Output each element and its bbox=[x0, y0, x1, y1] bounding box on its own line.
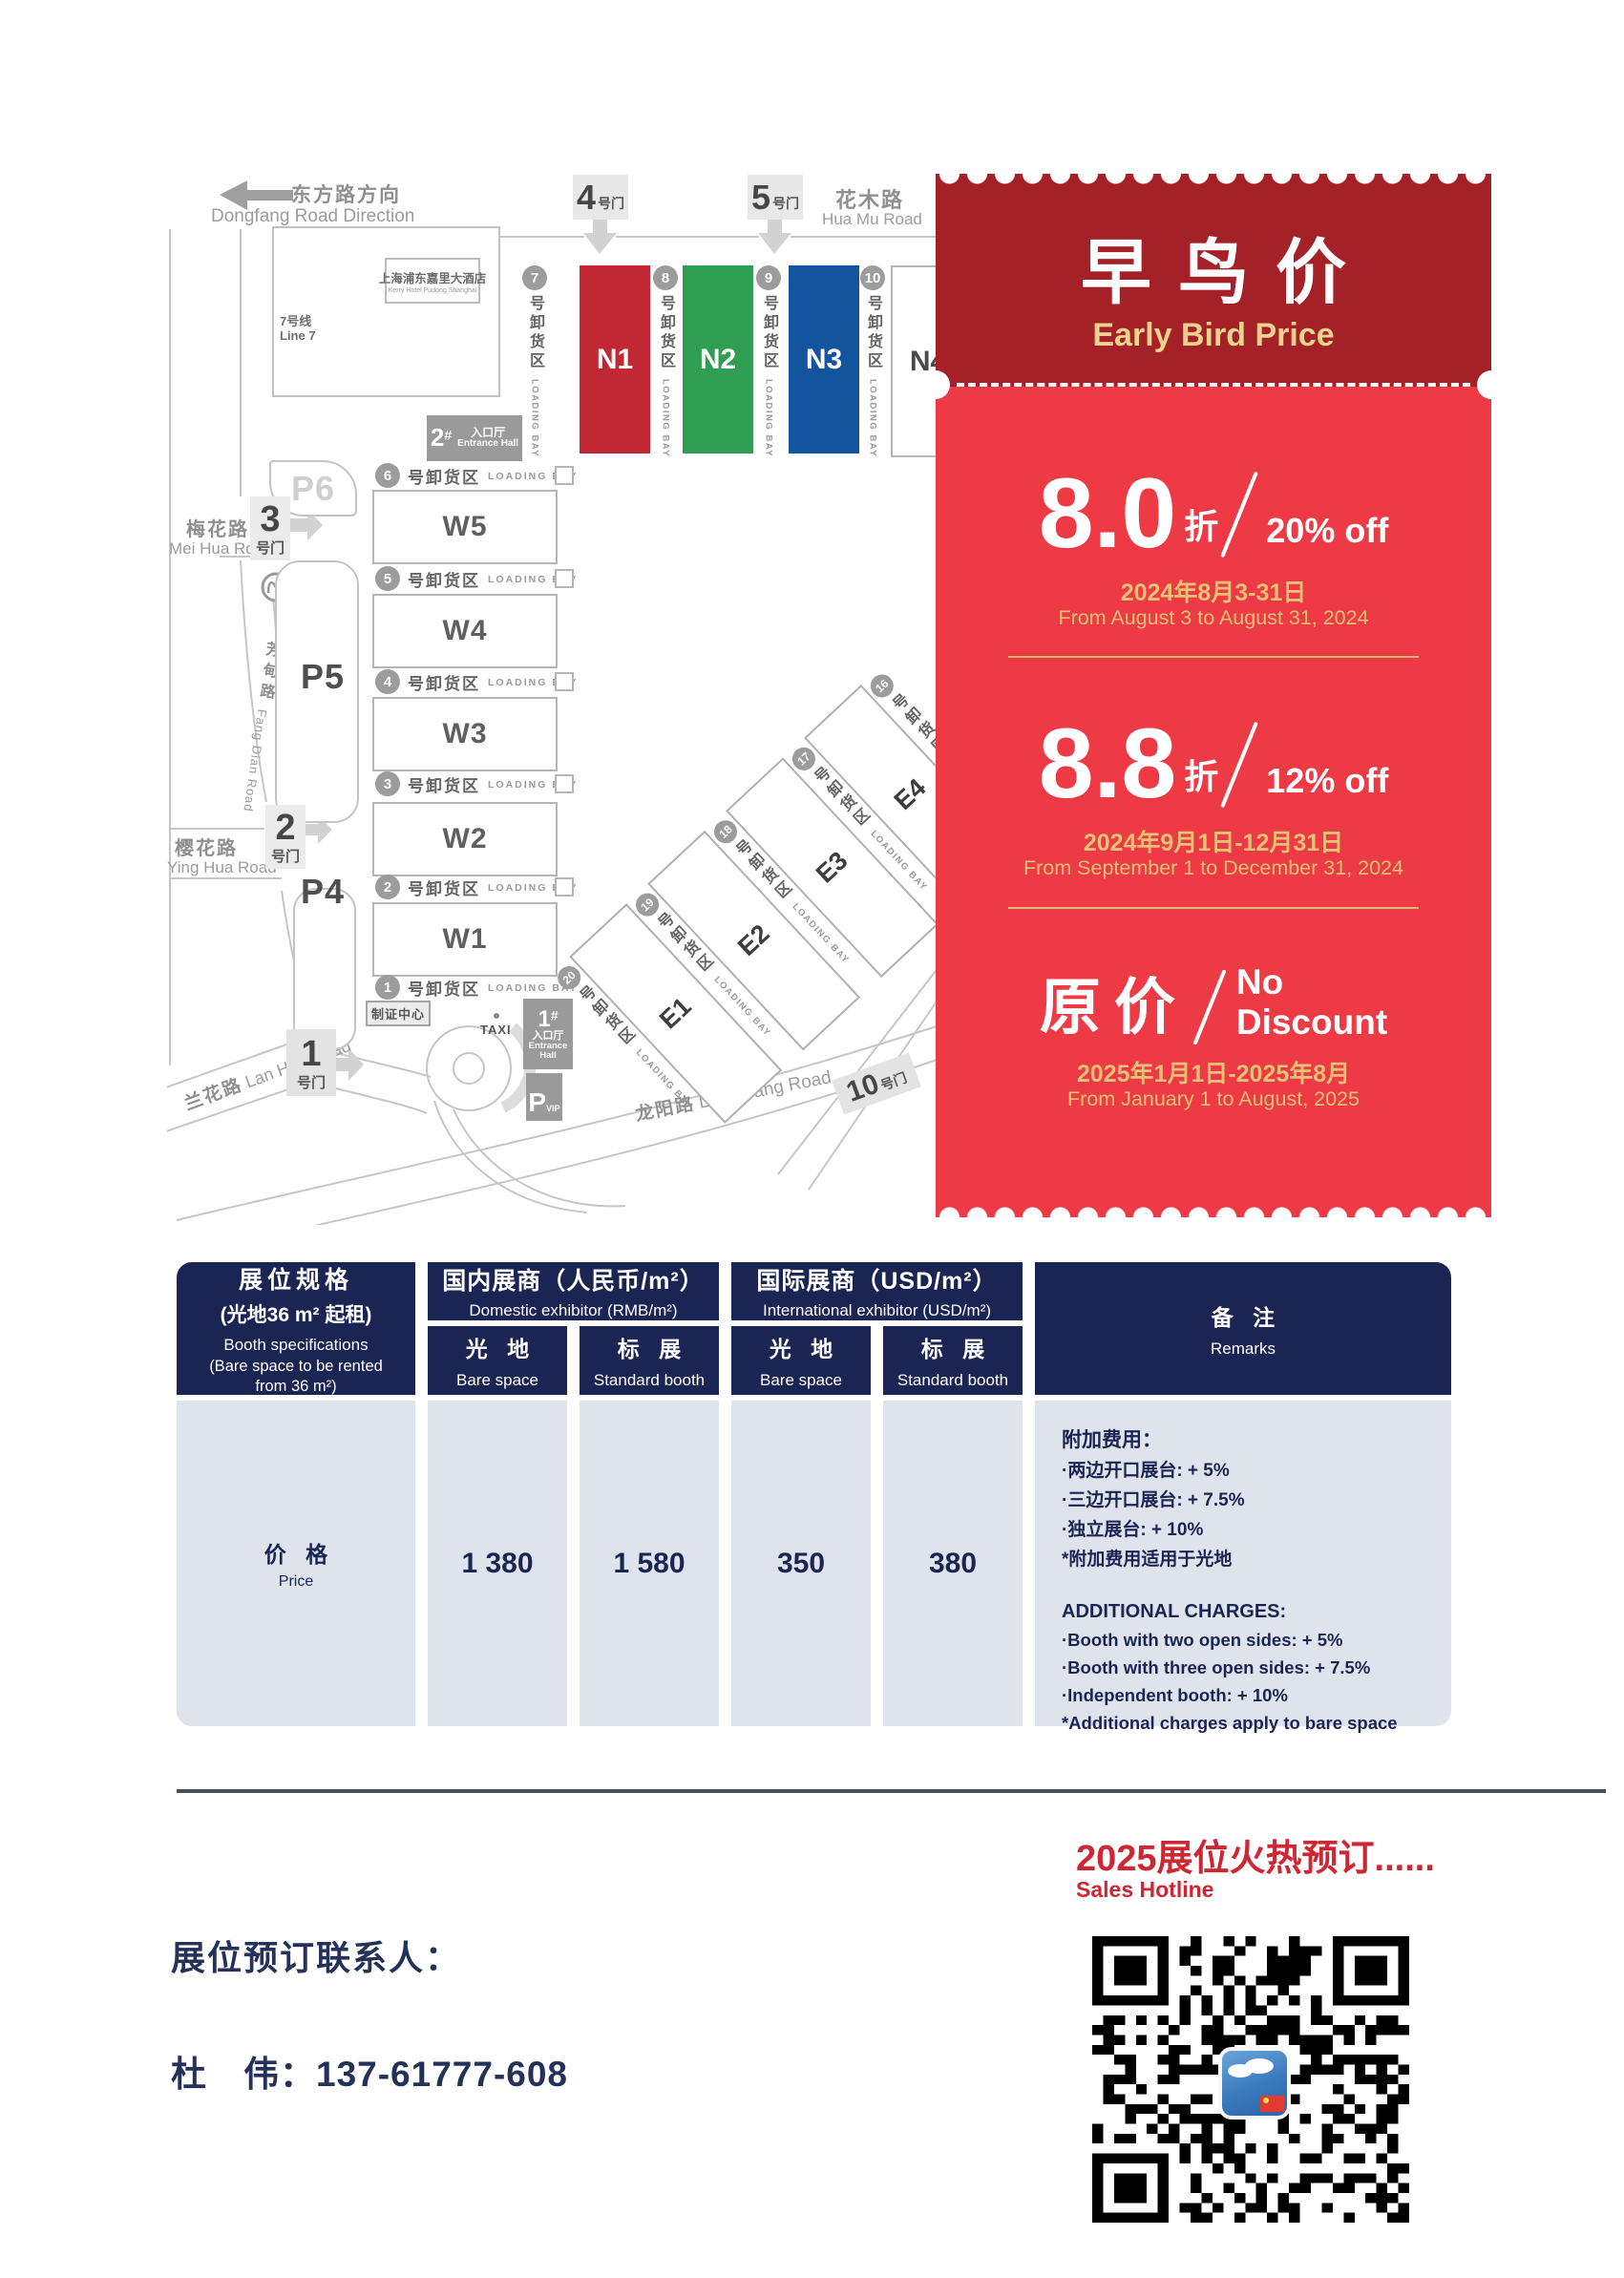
price-cell-international-standard: 380 bbox=[883, 1401, 1023, 1726]
meihua-road-label-cn: 梅花路 bbox=[186, 514, 249, 541]
qr-center-logo bbox=[1218, 2047, 1291, 2120]
sub-bare-space-header: 光 地 Bare space bbox=[731, 1326, 871, 1395]
loading-bay-number: 6 bbox=[375, 463, 400, 488]
sub-bare-space-header: 光 地 Bare space bbox=[428, 1326, 567, 1395]
dock-notch bbox=[555, 466, 574, 485]
loading-bay-number: 10 bbox=[860, 265, 885, 290]
gate-5: 5 号门 bbox=[748, 175, 803, 220]
gate-2: 2 号门 bbox=[265, 805, 306, 869]
loading-bay-number: 4 bbox=[375, 669, 400, 694]
exhibition-flyer-page: 东方路方向 Dongfang Road Direction 花木路 Hua Mu… bbox=[0, 0, 1624, 2278]
flag-icon bbox=[1260, 2096, 1285, 2112]
loading-bay-strip-9: 9 号卸货区 LOADING BAY bbox=[754, 265, 783, 457]
loading-bay-row-3: 3 号卸货区 LOADING BAY bbox=[375, 770, 579, 797]
yinghua-road-label-en: Ying Hua Road bbox=[167, 858, 277, 877]
gate-1: 1 号门 bbox=[286, 1029, 336, 1096]
gate-4: 4 号门 bbox=[573, 175, 628, 220]
hall-w3: W3 bbox=[372, 697, 558, 771]
loading-bay-number: 3 bbox=[375, 771, 400, 796]
hall-n2: N2 bbox=[683, 265, 753, 453]
loading-bay-number: 8 bbox=[653, 265, 678, 290]
loading-bay-strip-7: 7 号卸货区 LOADING BAY bbox=[520, 265, 549, 457]
ticket-scallop-edge bbox=[936, 174, 1491, 186]
remarks-cell: 附加费用： ·两边开口展台: + 5% ·三边开口展台: + 7.5% ·独立展… bbox=[1035, 1401, 1451, 1726]
loading-bay-row-2: 2 号卸货区 LOADING BAY bbox=[375, 874, 579, 900]
loading-bay-number: 5 bbox=[375, 566, 400, 591]
col-booth-spec-header: 展位规格 (光地36 m² 起租) Booth specifications (… bbox=[177, 1262, 415, 1395]
price-cell-domestic-bare: 1 380 bbox=[428, 1401, 567, 1726]
loading-bay-row-1: 1 号卸货区 LOADING BAY bbox=[375, 974, 579, 1001]
loading-bay-number: 2 bbox=[375, 875, 400, 899]
section-divider bbox=[177, 1789, 1606, 1793]
coupon-title-en: Early Bird Price bbox=[936, 317, 1491, 354]
ticket-dashed-line bbox=[957, 383, 1470, 387]
gate-4-arrow-icon bbox=[583, 220, 617, 254]
sales-hotline-label: Sales Hotline bbox=[1076, 1877, 1213, 1903]
loading-bay-row-6: 6 号卸货区 LOADING BAY bbox=[375, 462, 579, 489]
hall-n3: N3 bbox=[789, 265, 859, 453]
hotel-block bbox=[272, 226, 500, 397]
cloud-shape bbox=[1245, 2058, 1274, 2074]
badge-center-label: 制证中心 bbox=[366, 1001, 431, 1026]
gate-3: 3 号门 bbox=[250, 496, 290, 560]
price-cell-international-bare: 350 bbox=[731, 1401, 871, 1726]
ticket-notch bbox=[921, 370, 950, 399]
price-row-label: 价 格 Price bbox=[177, 1401, 415, 1726]
group-international-header: 国际展商（USD/m²） International exhibitor (US… bbox=[731, 1262, 1023, 1320]
gate-5-arrow-icon bbox=[758, 220, 791, 254]
price-cell-domestic-standard: 1 580 bbox=[580, 1401, 719, 1726]
ticket-notch bbox=[1477, 370, 1506, 399]
sub-standard-booth-header: 标 展 Standard booth bbox=[883, 1326, 1023, 1395]
tier2-discount: 8.8 折 12% off bbox=[936, 692, 1491, 811]
hall-w2: W2 bbox=[372, 802, 558, 876]
dongfang-road-label-en: Dongfang Road Direction bbox=[211, 206, 414, 227]
huamu-road-label-en: Hua Mu Road bbox=[822, 210, 922, 229]
tier3-no-discount: 原价 No Discount bbox=[936, 942, 1491, 1047]
col-remarks-header: 备 注 Remarks bbox=[1035, 1262, 1451, 1395]
loading-bay-strip-10: 10 号卸货区 LOADING BAY bbox=[858, 265, 887, 457]
loading-bay-number: 1 bbox=[375, 975, 400, 1000]
yinghua-road-label-cn: 樱花路 bbox=[175, 833, 238, 860]
sub-standard-booth-header: 标 展 Standard booth bbox=[580, 1326, 719, 1395]
coupon-body: 8.0 折 20% off 2024年8月3-31日 From August 3… bbox=[936, 387, 1491, 1217]
taxi-label: TAXI bbox=[480, 1023, 512, 1037]
coupon-header: 早鸟价 Early Bird Price bbox=[936, 174, 1491, 387]
slash-divider bbox=[1192, 969, 1226, 1044]
loading-bay-number: 9 bbox=[756, 265, 781, 290]
loading-bay-strip-8: 8 号卸货区 LOADING BAY bbox=[651, 265, 680, 457]
tier1-discount: 8.0 折 20% off bbox=[936, 442, 1491, 560]
parking-p4-label: P4 bbox=[301, 872, 345, 912]
dock-notch bbox=[555, 672, 574, 691]
coupon-title-cn: 早鸟价 bbox=[936, 216, 1491, 318]
dongfang-road-label-cn: 东方路方向 bbox=[291, 179, 401, 208]
hall-w4: W4 bbox=[372, 594, 558, 668]
slash-divider bbox=[1220, 472, 1258, 559]
loading-bay-row-5: 5 号卸货区 LOADING BAY bbox=[375, 565, 579, 592]
contact-label: 展位预订联系人： bbox=[171, 1930, 461, 1980]
entrance-hall-2: 2# 入口厅 Entrance Hall bbox=[427, 415, 522, 461]
gold-divider bbox=[1008, 907, 1419, 909]
parking-p4 bbox=[293, 888, 356, 1050]
contact-phone: 杜 伟：137-61777-608 bbox=[171, 2045, 568, 2097]
venue-map: 东方路方向 Dongfang Road Direction 花木路 Hua Mu… bbox=[167, 170, 945, 1225]
hall-n1: N1 bbox=[580, 265, 650, 453]
hall-w1: W1 bbox=[372, 902, 558, 977]
group-domestic-header: 国内展商（人民币/m²） Domestic exhibitor (RMB/m²) bbox=[428, 1262, 719, 1320]
line7-station-label: 7号线 Line 7 bbox=[280, 315, 316, 344]
loading-bay-number: 7 bbox=[522, 265, 547, 290]
vip-parking: P VIP bbox=[526, 1073, 562, 1121]
gold-divider bbox=[1008, 656, 1419, 658]
dock-notch bbox=[555, 877, 574, 896]
dock-notch bbox=[555, 569, 574, 588]
hall-w5: W5 bbox=[372, 490, 558, 564]
loading-bay-row-4: 4 号卸货区 LOADING BAY bbox=[375, 668, 579, 695]
booking-hot-title: 2025展位火热预订...... bbox=[1076, 1828, 1435, 1881]
ticket-scallop-edge bbox=[936, 1205, 1491, 1217]
price-table: 展位规格 (光地36 m² 起租) Booth specifications (… bbox=[177, 1262, 1451, 1726]
parking-p5-label: P5 bbox=[301, 657, 345, 697]
dock-notch bbox=[555, 774, 574, 793]
entrance-hall-1: 1# 入口厅 Entrance Hall bbox=[523, 999, 573, 1069]
hotel-label: 上海浦东嘉里大酒店 Kerry Hotel Pudong Shanghai bbox=[385, 258, 480, 304]
early-bird-coupon: 早鸟价 Early Bird Price 8.0 折 20% off 2024年… bbox=[936, 174, 1491, 1217]
slash-divider bbox=[1220, 722, 1258, 809]
